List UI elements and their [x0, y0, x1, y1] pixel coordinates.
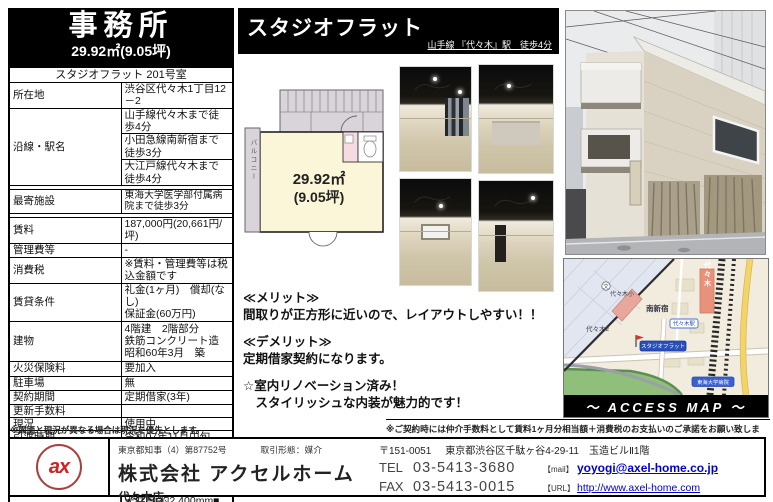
- mail-link[interactable]: yoyogi@axel-home.co.jp: [577, 461, 718, 475]
- agency-footer: ax 東京都知事（4）第87752号 取引形態：媒介 株式会社 アクセルホーム …: [8, 437, 766, 497]
- station-access-label: 山手線 『代々木』駅 徒歩4分: [427, 38, 552, 51]
- school-label: 代々木小: [610, 290, 634, 298]
- row-label: 更新手数料: [9, 404, 121, 417]
- row-label: 建物: [9, 321, 121, 361]
- watermark: [491, 74, 535, 100]
- map-drawing: 代々木 文 代々木小 代々木2 南新宿 代々木駅 スタジオフラット 東海大学病院: [564, 259, 768, 395]
- table-row: 管理費等 -: [9, 243, 233, 257]
- row-value: 渋谷区代々木1丁目12－2: [121, 82, 233, 108]
- row-value: [121, 404, 233, 417]
- school-mark-icon: 文: [603, 283, 609, 291]
- interior-photo-2: [478, 64, 554, 174]
- property-type-title: 事務所: [10, 11, 232, 41]
- row-label: 賃貸条件: [9, 283, 121, 321]
- floor-plan-drawing: バルコニー 29.92㎡ (9.05坪): [243, 60, 399, 292]
- access-map: 代々木 文 代々木小 代々木2 南新宿 代々木駅 スタジオフラット 東海大学病院…: [563, 258, 769, 418]
- demerit-text: 定期借家契約になります。: [243, 351, 565, 368]
- row-value: 東海大学医学部付属病院まで徒歩3分: [121, 189, 233, 213]
- row-value: 4階建 2階部分 鉄筋コンクリート造 昭和60年3月 築: [121, 321, 233, 361]
- building-name-header: スタジオフラット 山手線 『代々木』駅 徒歩4分: [238, 8, 559, 54]
- yoyogi2-label: 代々木2: [586, 324, 610, 333]
- row-label: 火災保険料: [9, 361, 121, 376]
- row-label: 駐車場: [9, 376, 121, 390]
- row-value: 小田急線南新宿まで徒歩3分: [121, 134, 233, 160]
- agency-contact-block: 〒151-0051 東京都渋谷区千駄ヶ谷4-29-11 玉造ビルⅡ1階 TEL …: [375, 439, 764, 495]
- table-row: 最寄施設 東海大学医学部付属病院まで徒歩3分: [9, 189, 233, 213]
- deal-type: 取引形態：媒介: [261, 443, 323, 456]
- access-map-banner: ～ ACCESS MAP ～: [564, 395, 768, 417]
- minami-shinjuku-label: 南新宿: [646, 303, 669, 313]
- agency-logo: ax: [10, 439, 110, 495]
- yoyogi-eki-pill-label: 代々木駅: [673, 320, 696, 328]
- property-pill-label: スタジオフラット: [641, 342, 685, 350]
- row-label: 沿線・駅名: [9, 108, 121, 185]
- row-value: 山手線代々木まで徒歩4分: [121, 108, 233, 134]
- fax-label: FAX: [379, 479, 413, 494]
- building-exterior-drawing: [566, 11, 765, 254]
- flyer-page: 事務所 29.92㎡(9.05坪) スタジオフラット 201号室 所在地 渋谷区…: [0, 0, 773, 502]
- table-row: 駐車場 無: [9, 376, 233, 390]
- license-number: 東京都知事（4）第87752号: [118, 443, 227, 456]
- plan-area-tsubo: (9.05坪): [294, 189, 345, 205]
- table-row: 沿線・駅名 山手線代々木まで徒歩4分: [9, 108, 233, 134]
- toilet-icon: [364, 141, 376, 157]
- row-label: 管理費等: [9, 243, 121, 257]
- watermark: [411, 187, 454, 212]
- table-row: 消費税 ※賃料・管理費等は税込金額です: [9, 257, 233, 283]
- table-row: 建物 4階建 2階部分 鉄筋コンクリート造 昭和60年3月 築: [9, 321, 233, 361]
- table-row: 火災保険料 要加入: [9, 361, 233, 376]
- row-label: 最寄施設: [9, 189, 121, 213]
- fax-number: 03-5413-0015: [413, 479, 543, 495]
- row-value: 礼金(1ヶ月) 償却(なし) 保証金(60万円): [121, 283, 233, 321]
- table-row: 賃貸条件 礼金(1ヶ月) 償却(なし) 保証金(60万円): [9, 283, 233, 321]
- address: 東京都渋谷区千駄ヶ谷4-29-11 玉造ビルⅡ1階: [445, 442, 649, 457]
- sink-icon: [345, 135, 353, 143]
- company-name: 株式会社 アクセルホーム: [118, 459, 367, 486]
- merit-title: ≪メリット≫: [243, 290, 565, 307]
- table-row: 賃料 187,000円(20,661円/坪): [9, 218, 233, 244]
- row-label: 所在地: [9, 82, 121, 108]
- property-area: 29.92㎡(9.05坪): [10, 41, 232, 61]
- row-label: 契約期間: [9, 390, 121, 404]
- website-link[interactable]: http://www.axel-home.com: [577, 482, 700, 494]
- tel-label: TEL: [379, 460, 413, 475]
- row-value: 無: [121, 376, 233, 390]
- building-name: スタジオフラット: [238, 8, 559, 42]
- row-value: 187,000円(20,661円/坪): [121, 218, 233, 244]
- building-room-name: スタジオフラット 201号室: [9, 67, 233, 82]
- agency-logo-circle: ax: [36, 444, 82, 490]
- row-label: 消費税: [9, 257, 121, 283]
- url-label: 【URL】: [543, 483, 577, 494]
- merit-text: 間取りが正方形に近いので、レイアウトしやすい！！: [243, 307, 565, 324]
- tel-number: 03-5413-3680: [413, 460, 543, 476]
- table-row: 契約期間 定期借家(3年): [9, 390, 233, 404]
- agency-company-block: 東京都知事（4）第87752号 取引形態：媒介 株式会社 アクセルホーム 代々木…: [110, 439, 375, 495]
- row-value: ※賃料・管理費等は税込金額です: [121, 257, 233, 283]
- building-sign: [630, 161, 641, 205]
- row-value: 定期借家(3年): [121, 390, 233, 404]
- hospital-pill-label: 東海大学病院: [697, 378, 729, 386]
- mail-label: 【mail】: [543, 464, 577, 475]
- row-value: 要加入: [121, 361, 233, 376]
- highlight-line-2: スタイリッシュな内装が魅力的です！: [243, 395, 565, 412]
- shutter-left: [648, 181, 700, 239]
- interior-photo-4: [478, 180, 554, 292]
- agency-logo-mark: ax: [49, 456, 69, 479]
- table-row: 更新手数料: [9, 404, 233, 417]
- property-type-header: 事務所 29.92㎡(9.05坪): [8, 8, 234, 66]
- building-exterior-photo: [565, 10, 766, 255]
- interior-photo-3: [399, 178, 472, 286]
- demerit-title: ≪デメリット≫: [243, 334, 565, 351]
- merit-demerit-block: ≪メリット≫ 間取りが正方形に近いので、レイアウトしやすい！！ ≪デメリット≫ …: [243, 290, 565, 411]
- watermark: [491, 190, 535, 216]
- row-label: 賃料: [9, 218, 121, 244]
- highlight-line-1: ☆室内リノベーション済み！: [243, 378, 565, 395]
- interior-photo-1: [399, 66, 472, 172]
- row-value: -: [121, 243, 233, 257]
- branch-name: 代々木店: [118, 489, 367, 502]
- plan-area-m2: 29.92㎡: [293, 170, 346, 188]
- postal-code: 〒151-0051: [379, 442, 431, 457]
- table-row: 所在地 渋谷区代々木1丁目12－2: [9, 82, 233, 108]
- drawing-disclaimer: ※図面と現況が異なる場合は現況を優先とします。: [10, 424, 204, 436]
- table-row: スタジオフラット 201号室: [9, 67, 233, 82]
- floor-plan: バルコニー 29.92㎡ (9.05坪): [243, 60, 399, 292]
- row-value: 大江戸線代々木まで徒歩4分: [121, 160, 233, 186]
